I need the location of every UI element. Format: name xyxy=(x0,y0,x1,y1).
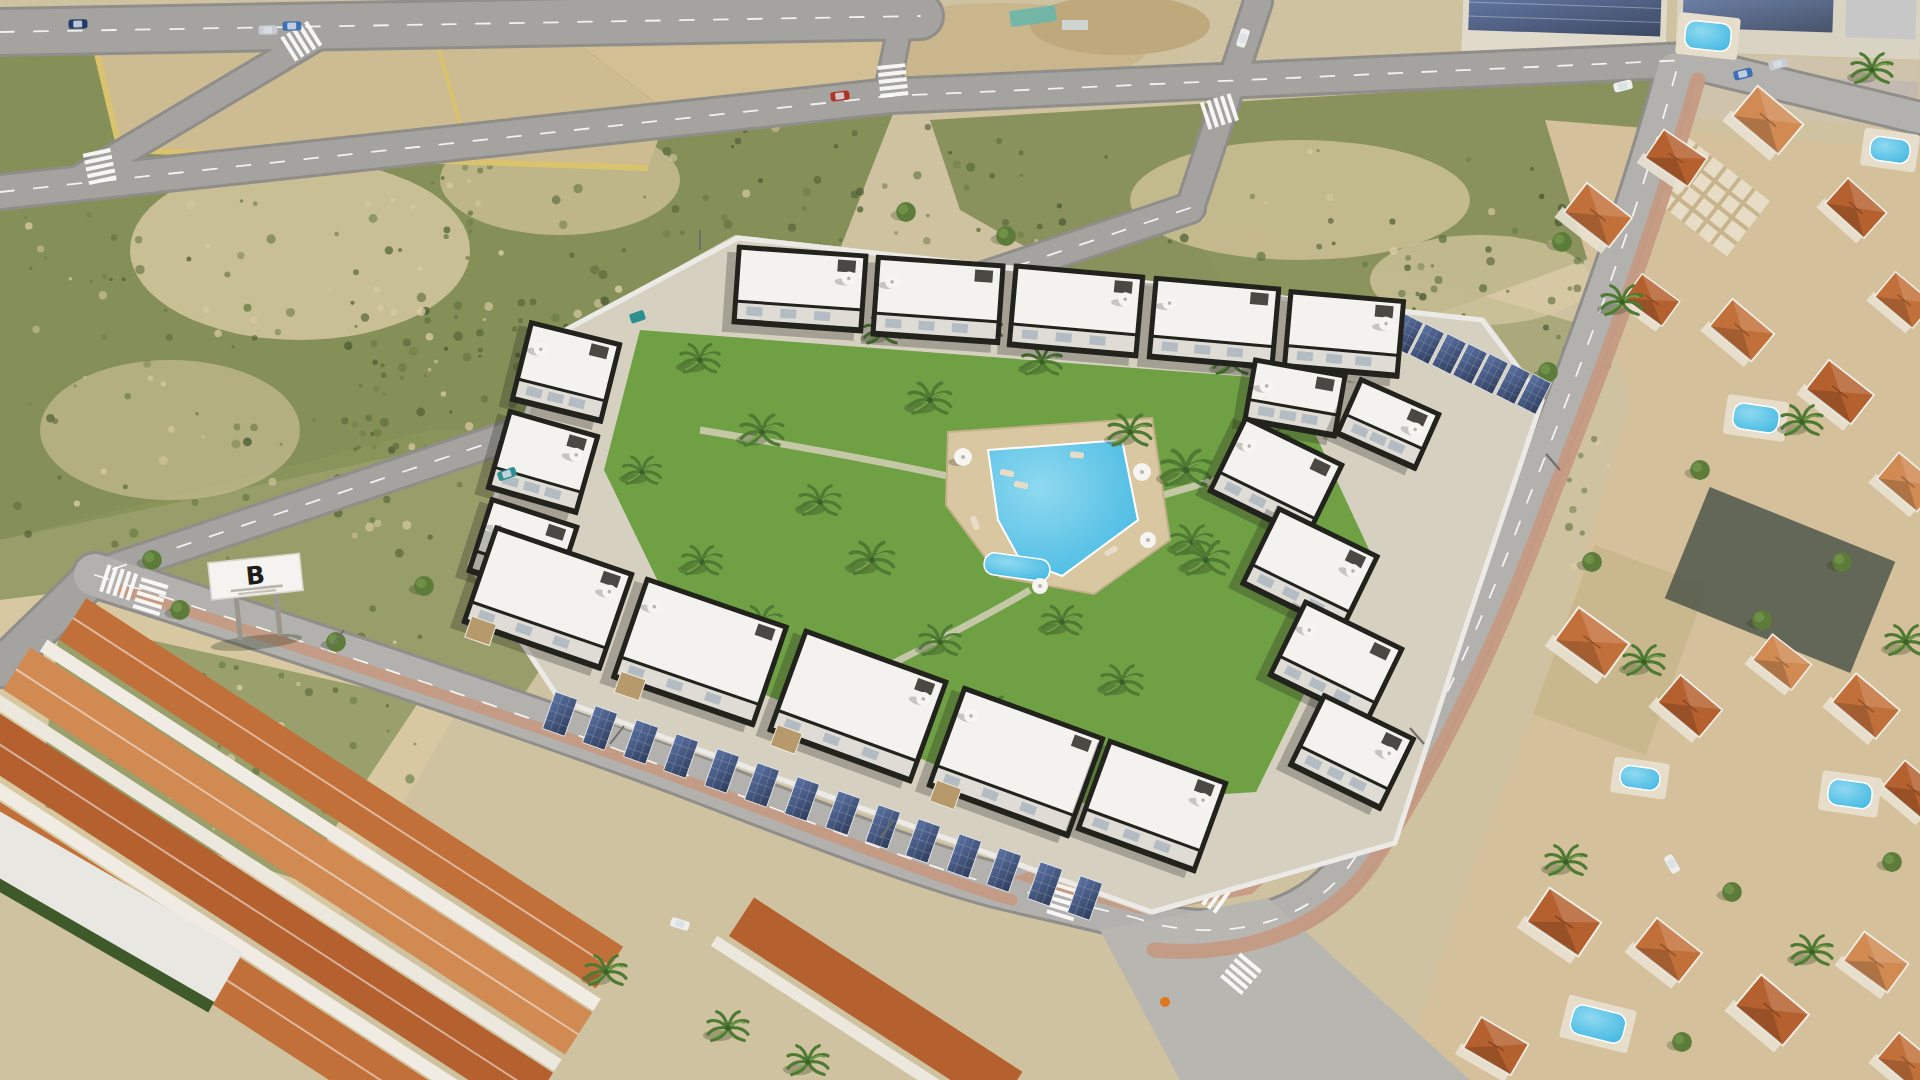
shrub xyxy=(498,250,503,255)
shrub xyxy=(643,195,646,198)
shrub xyxy=(334,232,339,237)
shrub xyxy=(244,304,252,312)
shrub xyxy=(380,363,384,367)
shrub xyxy=(329,287,332,290)
private-pool xyxy=(1818,770,1883,818)
shrub xyxy=(1398,290,1405,297)
shrub xyxy=(1431,264,1435,268)
shrub xyxy=(377,305,383,311)
shrub xyxy=(512,326,517,331)
shrub xyxy=(123,484,128,489)
shrub xyxy=(1362,262,1368,268)
shrub xyxy=(387,729,390,732)
townhouse-block xyxy=(861,254,1006,353)
shrub xyxy=(286,308,295,317)
shrub xyxy=(803,187,812,196)
shrub xyxy=(427,534,432,539)
shrub xyxy=(731,145,734,148)
shrub xyxy=(462,165,468,171)
shrub xyxy=(234,665,239,670)
shrub xyxy=(852,130,858,136)
shrub xyxy=(24,216,27,219)
shrub xyxy=(469,220,473,224)
shrub xyxy=(275,329,281,335)
shrub xyxy=(109,278,112,281)
shrub xyxy=(1002,219,1009,226)
shrub xyxy=(1567,286,1572,291)
shrub xyxy=(350,697,358,705)
shrub xyxy=(405,774,414,783)
shrub xyxy=(1104,155,1108,159)
shrub xyxy=(24,530,32,538)
shrub xyxy=(1057,203,1062,208)
shrub xyxy=(1574,257,1582,265)
shrub xyxy=(1591,436,1597,442)
shrub xyxy=(83,376,86,379)
shrub xyxy=(1168,240,1172,244)
shrub xyxy=(742,190,750,198)
shrub xyxy=(1059,218,1066,225)
shrub xyxy=(87,213,92,218)
car xyxy=(68,19,87,29)
shrub xyxy=(380,418,389,427)
shrub xyxy=(834,144,838,148)
shrub xyxy=(856,188,864,196)
shrub xyxy=(1506,290,1509,293)
shrub xyxy=(476,329,484,337)
shrub xyxy=(374,429,382,437)
shrub xyxy=(454,315,458,319)
shrub xyxy=(400,376,404,380)
shrub xyxy=(353,269,359,275)
shrub xyxy=(382,391,386,395)
shrub xyxy=(186,201,195,210)
shrub xyxy=(1581,488,1587,494)
shrub xyxy=(478,354,481,357)
shrub xyxy=(1543,324,1549,330)
shrub xyxy=(408,443,415,450)
shrub xyxy=(341,417,348,424)
shrub xyxy=(424,374,427,377)
shrub xyxy=(135,265,144,274)
shrub xyxy=(240,199,244,203)
shrub xyxy=(670,154,678,162)
shrub xyxy=(393,641,397,645)
shrub xyxy=(29,267,32,270)
shrub xyxy=(13,502,21,510)
shrub xyxy=(359,431,365,437)
shrub xyxy=(1417,263,1424,270)
shrub xyxy=(1569,506,1576,513)
shrub xyxy=(758,178,763,183)
shrub xyxy=(74,501,80,507)
shrub xyxy=(361,313,369,321)
shrub xyxy=(1548,297,1556,305)
shrub xyxy=(802,206,807,211)
shrub xyxy=(1580,530,1585,535)
shrub xyxy=(366,415,373,422)
shrub xyxy=(1019,151,1024,156)
shrub xyxy=(463,353,472,362)
shrub xyxy=(369,214,378,223)
shrub xyxy=(214,330,222,338)
shrub xyxy=(454,332,463,341)
shrub xyxy=(99,291,107,299)
shrub xyxy=(359,384,363,388)
shrub xyxy=(234,424,241,431)
shrub xyxy=(1567,478,1572,483)
shrub xyxy=(926,214,930,218)
shrub xyxy=(1573,284,1581,292)
shrub xyxy=(1326,194,1334,202)
shrub xyxy=(444,234,449,239)
shrub xyxy=(702,195,709,202)
shrub xyxy=(242,494,249,501)
shrub xyxy=(1572,279,1575,282)
shrub xyxy=(417,293,426,302)
shrub xyxy=(279,673,285,679)
shrub xyxy=(484,302,493,311)
shrub xyxy=(280,443,283,446)
shrub xyxy=(1512,227,1519,234)
shrub xyxy=(465,422,473,430)
shrub xyxy=(391,309,398,316)
shrub xyxy=(483,318,487,322)
shrub xyxy=(383,496,390,503)
shrub xyxy=(369,605,376,612)
aerial-scene: B xyxy=(0,0,1920,1080)
shrub xyxy=(457,482,463,488)
shrub xyxy=(663,147,672,156)
shrub xyxy=(1405,255,1411,261)
townhouse-block xyxy=(997,263,1145,367)
shrub xyxy=(148,376,154,382)
shrub xyxy=(441,176,445,180)
shrub xyxy=(953,160,961,168)
shrub xyxy=(101,469,107,475)
shrub xyxy=(1431,285,1438,292)
shrub xyxy=(374,386,380,392)
shrub xyxy=(413,742,416,745)
shrub xyxy=(599,270,608,279)
shrub xyxy=(518,299,525,306)
shrub xyxy=(1264,201,1268,205)
shrub xyxy=(243,438,252,447)
shrub xyxy=(1466,157,1471,162)
shrub xyxy=(1389,247,1397,255)
shrub xyxy=(615,285,622,292)
shrub xyxy=(923,237,931,245)
shrub xyxy=(219,662,226,669)
shrub xyxy=(444,347,448,351)
shrub xyxy=(374,287,381,294)
shrub xyxy=(296,682,300,686)
private-pool xyxy=(1675,12,1741,60)
shrub xyxy=(416,307,425,316)
shrub xyxy=(1488,208,1495,215)
shrub xyxy=(25,222,32,229)
shrub xyxy=(1556,335,1561,340)
shrub xyxy=(1328,218,1334,224)
shrub xyxy=(386,704,390,708)
shrub xyxy=(203,307,209,313)
shrub xyxy=(925,124,931,130)
shrub xyxy=(475,201,481,207)
shrub xyxy=(232,439,241,448)
shrub xyxy=(839,238,843,242)
shrub xyxy=(1479,284,1487,292)
shrub xyxy=(976,228,980,232)
shrub xyxy=(1419,293,1427,301)
shrub xyxy=(428,368,432,372)
shrub xyxy=(426,333,434,341)
shrub xyxy=(963,184,969,190)
shrub xyxy=(305,688,313,696)
shrub xyxy=(369,517,375,523)
shrub xyxy=(530,298,537,305)
shrub xyxy=(1037,223,1043,229)
shrub xyxy=(232,345,235,348)
shrub xyxy=(573,184,582,193)
shrub xyxy=(424,317,431,324)
shrub xyxy=(161,381,166,386)
shrub xyxy=(663,230,671,238)
shrub xyxy=(1389,219,1395,225)
shrub xyxy=(344,342,352,350)
shrub xyxy=(402,521,411,530)
shrub xyxy=(1539,194,1544,199)
shrub xyxy=(1404,265,1411,272)
shrub xyxy=(590,265,599,274)
shrub xyxy=(569,253,574,258)
shrub xyxy=(398,248,402,252)
shrub xyxy=(312,418,315,421)
shrub xyxy=(390,198,395,203)
shrub xyxy=(57,476,61,480)
shrub xyxy=(102,274,107,279)
shrub xyxy=(365,523,374,532)
shrub xyxy=(1018,232,1024,238)
car xyxy=(258,25,277,35)
aerial-photo: Aerial drone render of a new Mediterrane… xyxy=(0,0,1920,1080)
shrub xyxy=(212,827,215,830)
shrub xyxy=(1439,235,1447,243)
shrub xyxy=(393,443,400,450)
shrub xyxy=(352,421,358,427)
shrub xyxy=(125,393,131,399)
shrub xyxy=(373,360,378,365)
shrub xyxy=(111,235,117,241)
shrub xyxy=(205,244,210,249)
shrub xyxy=(101,334,107,340)
shrub xyxy=(735,138,741,144)
shrub xyxy=(1486,257,1495,266)
shrub xyxy=(353,447,357,451)
shrub xyxy=(28,402,32,406)
shrub xyxy=(395,549,404,558)
shrub xyxy=(441,391,447,397)
shrub xyxy=(996,138,1002,144)
shrub xyxy=(478,348,483,353)
shrub xyxy=(481,395,488,402)
shrub xyxy=(465,256,469,260)
shrub xyxy=(416,408,425,417)
shrub xyxy=(1307,149,1312,154)
shrub xyxy=(122,277,126,281)
shrub xyxy=(366,202,372,208)
shrub xyxy=(381,373,386,378)
shrub xyxy=(1180,234,1189,243)
shrub xyxy=(680,230,685,235)
road-marking-orange xyxy=(1160,997,1170,1007)
shrub xyxy=(600,297,609,306)
shrub xyxy=(259,654,265,660)
shrub xyxy=(252,335,258,341)
shrub xyxy=(372,445,377,450)
shrub xyxy=(52,418,58,424)
shrub xyxy=(333,687,339,693)
shrub xyxy=(1485,246,1491,252)
shrub xyxy=(468,180,471,183)
shrub xyxy=(1530,167,1534,171)
shrub xyxy=(1257,252,1266,261)
shrub xyxy=(352,533,358,539)
shrub xyxy=(454,301,463,310)
shrub xyxy=(350,742,357,749)
shrub xyxy=(622,248,627,253)
shrub xyxy=(37,245,44,252)
shrub xyxy=(723,220,732,229)
shrub xyxy=(398,363,407,372)
shrub xyxy=(814,176,822,184)
shrub xyxy=(385,246,393,254)
shrub xyxy=(403,338,411,346)
shrub xyxy=(89,280,93,284)
shrub xyxy=(69,277,72,280)
shrub xyxy=(1571,563,1578,570)
shrub xyxy=(268,478,276,486)
shrub xyxy=(186,257,191,262)
shrub xyxy=(1316,244,1322,250)
shrub xyxy=(434,359,438,363)
shrub xyxy=(551,313,560,322)
shrub xyxy=(166,334,173,341)
shrub xyxy=(250,316,258,324)
shrub xyxy=(573,310,582,319)
shrub xyxy=(355,325,358,328)
shrub xyxy=(44,256,47,259)
shrub xyxy=(218,745,222,749)
shrub xyxy=(948,151,952,155)
shrub xyxy=(253,201,258,206)
shrub xyxy=(237,685,243,691)
shrub xyxy=(224,271,230,277)
shrub xyxy=(1332,242,1336,246)
shrub xyxy=(1020,174,1024,178)
shrub xyxy=(552,196,561,205)
shrub xyxy=(913,171,921,179)
shrub xyxy=(32,326,39,333)
shrub xyxy=(449,410,453,414)
shrub xyxy=(164,308,168,312)
shrub xyxy=(418,634,423,639)
shrub xyxy=(168,426,175,433)
private-pool xyxy=(1723,394,1790,442)
shrub xyxy=(1250,194,1255,199)
shrub xyxy=(411,205,415,209)
shrub xyxy=(143,360,151,368)
shrub xyxy=(1435,276,1443,284)
shrub xyxy=(237,252,244,259)
shrub xyxy=(409,347,418,356)
shrub xyxy=(468,210,473,215)
shrub xyxy=(266,234,275,243)
shrub xyxy=(226,556,229,559)
shrub xyxy=(192,499,199,506)
shrub xyxy=(350,301,354,305)
shrub xyxy=(477,167,483,173)
shrub xyxy=(966,163,975,172)
shrub xyxy=(1578,453,1584,459)
shrub xyxy=(135,236,142,243)
townhouse-block xyxy=(722,244,869,342)
private-pool xyxy=(1860,127,1920,172)
shrub xyxy=(129,529,138,538)
car xyxy=(282,21,301,31)
shrub xyxy=(894,231,898,235)
shrub xyxy=(444,227,451,234)
shrub xyxy=(989,173,995,179)
shrub xyxy=(250,424,257,431)
shrub xyxy=(431,182,434,185)
shrub xyxy=(1415,292,1419,296)
shrub xyxy=(111,541,118,548)
shrub xyxy=(418,266,423,271)
shrub xyxy=(1583,277,1587,281)
shrub xyxy=(447,182,453,188)
shrub xyxy=(195,412,199,416)
shrub xyxy=(201,435,205,439)
shrub xyxy=(159,456,168,465)
shrub xyxy=(1317,149,1320,152)
shrub xyxy=(371,341,378,348)
shrub xyxy=(1565,523,1573,531)
shrub xyxy=(882,183,888,189)
shrub xyxy=(559,221,567,229)
shrub xyxy=(518,318,523,323)
shrub xyxy=(372,777,378,783)
shrub xyxy=(73,384,76,387)
shrub xyxy=(468,230,472,234)
shrub xyxy=(672,205,680,213)
shrub xyxy=(788,224,796,232)
shrub xyxy=(721,214,728,221)
shrub xyxy=(857,206,863,212)
